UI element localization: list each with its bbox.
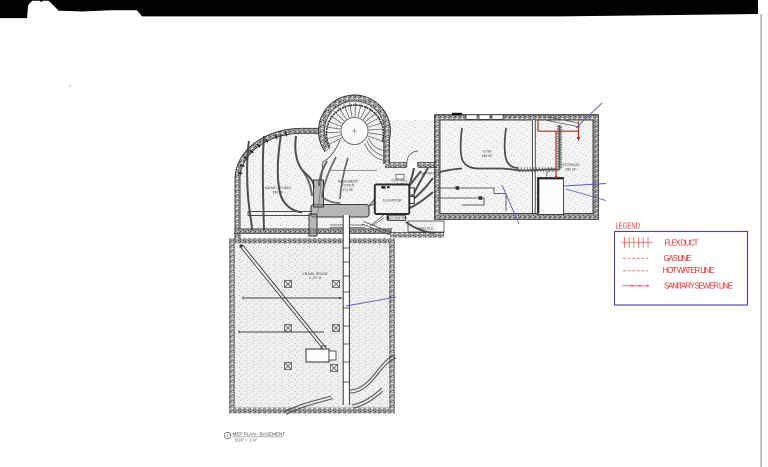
svg-text:1'-10" H: 1'-10" H <box>309 276 322 280</box>
svg-text:372 SF: 372 SF <box>343 188 354 192</box>
svg-text:354 SF: 354 SF <box>273 191 284 195</box>
svg-text:292 SF: 292 SF <box>566 168 577 172</box>
svg-text:GAS LINE: GAS LINE <box>664 254 692 263</box>
svg-text:CRAWL SPACE: CRAWL SPACE <box>302 272 328 276</box>
svg-text:MUSIC STUDIO: MUSIC STUDIO <box>265 186 291 190</box>
svg-text:BATHROOM: BATHROOM <box>421 172 441 176</box>
svg-text:3/16" = 1'-0": 3/16" = 1'-0" <box>235 437 258 442</box>
svg-text:SANITARY SEWER LINE: SANITARY SEWER LINE <box>664 282 733 291</box>
svg-text:FLEX DUCT: FLEX DUCT <box>665 238 699 247</box>
svg-text:MEP PLAN - BASEMENT: MEP PLAN - BASEMENT <box>233 432 286 437</box>
svg-text:156 SF: 156 SF <box>482 154 493 158</box>
svg-text:GYM: GYM <box>483 150 491 154</box>
svg-text:HVAC ELE: HVAC ELE <box>418 227 434 231</box>
svg-text:LEGEND: LEGEND <box>616 222 641 231</box>
svg-text:STORAGE: STORAGE <box>562 163 580 167</box>
svg-text:41 SF: 41 SF <box>395 182 403 186</box>
svg-text:MACHINE RM: MACHINE RM <box>386 217 407 221</box>
svg-text:HOT WATER LINE: HOT WATER LINE <box>663 266 715 275</box>
svg-text:ELEVATOR: ELEVATOR <box>383 199 402 203</box>
